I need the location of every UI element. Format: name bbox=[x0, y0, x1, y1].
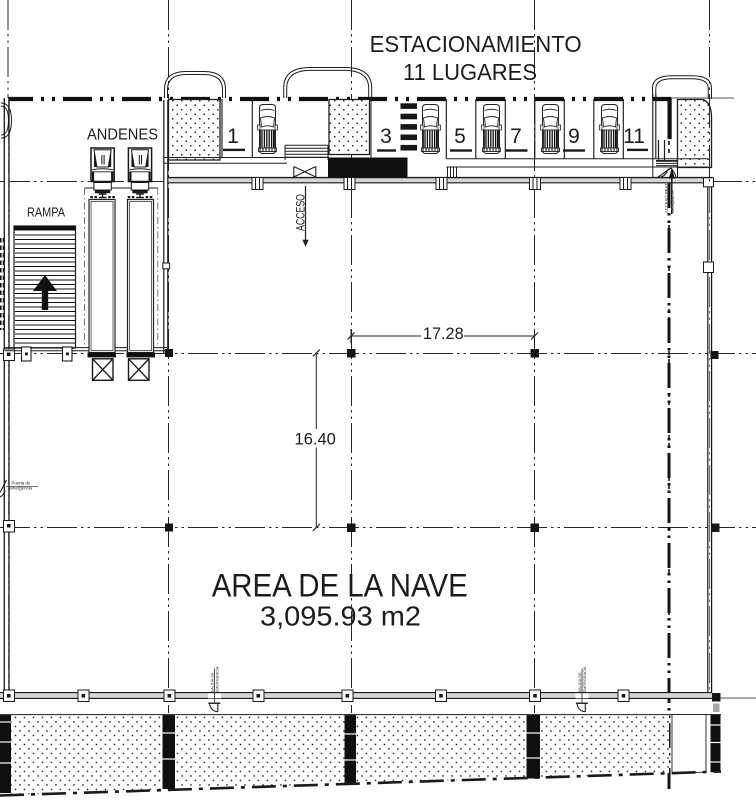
svg-text:AREA DE LA NAVE: AREA DE LA NAVE bbox=[212, 568, 468, 604]
svg-text:ESTACIONAMIENTO: ESTACIONAMIENTO bbox=[370, 31, 582, 57]
svg-text:3,095.93 m2: 3,095.93 m2 bbox=[260, 601, 421, 632]
svg-text:1: 1 bbox=[227, 125, 239, 148]
svg-text:RAMPA: RAMPA bbox=[27, 206, 66, 220]
svg-text:ACCESO PEAT.: ACCESO PEAT. bbox=[664, 183, 669, 213]
svg-text:11: 11 bbox=[623, 125, 645, 148]
svg-text:EMERGENCIA: EMERGENCIA bbox=[582, 666, 587, 693]
svg-text:17.28: 17.28 bbox=[423, 325, 464, 343]
svg-text:5: 5 bbox=[454, 125, 466, 148]
svg-text:9: 9 bbox=[568, 125, 580, 148]
svg-text:16.40: 16.40 bbox=[295, 430, 336, 448]
svg-text:11 LUGARES: 11 LUGARES bbox=[403, 59, 537, 85]
svg-text:7: 7 bbox=[510, 125, 522, 148]
svg-text:ANDENES: ANDENES bbox=[87, 127, 158, 144]
svg-text:3: 3 bbox=[380, 125, 392, 148]
svg-text:BANQUETA: BANQUETA bbox=[670, 190, 675, 213]
svg-text:EMERGENCIA: EMERGENCIA bbox=[214, 666, 219, 693]
